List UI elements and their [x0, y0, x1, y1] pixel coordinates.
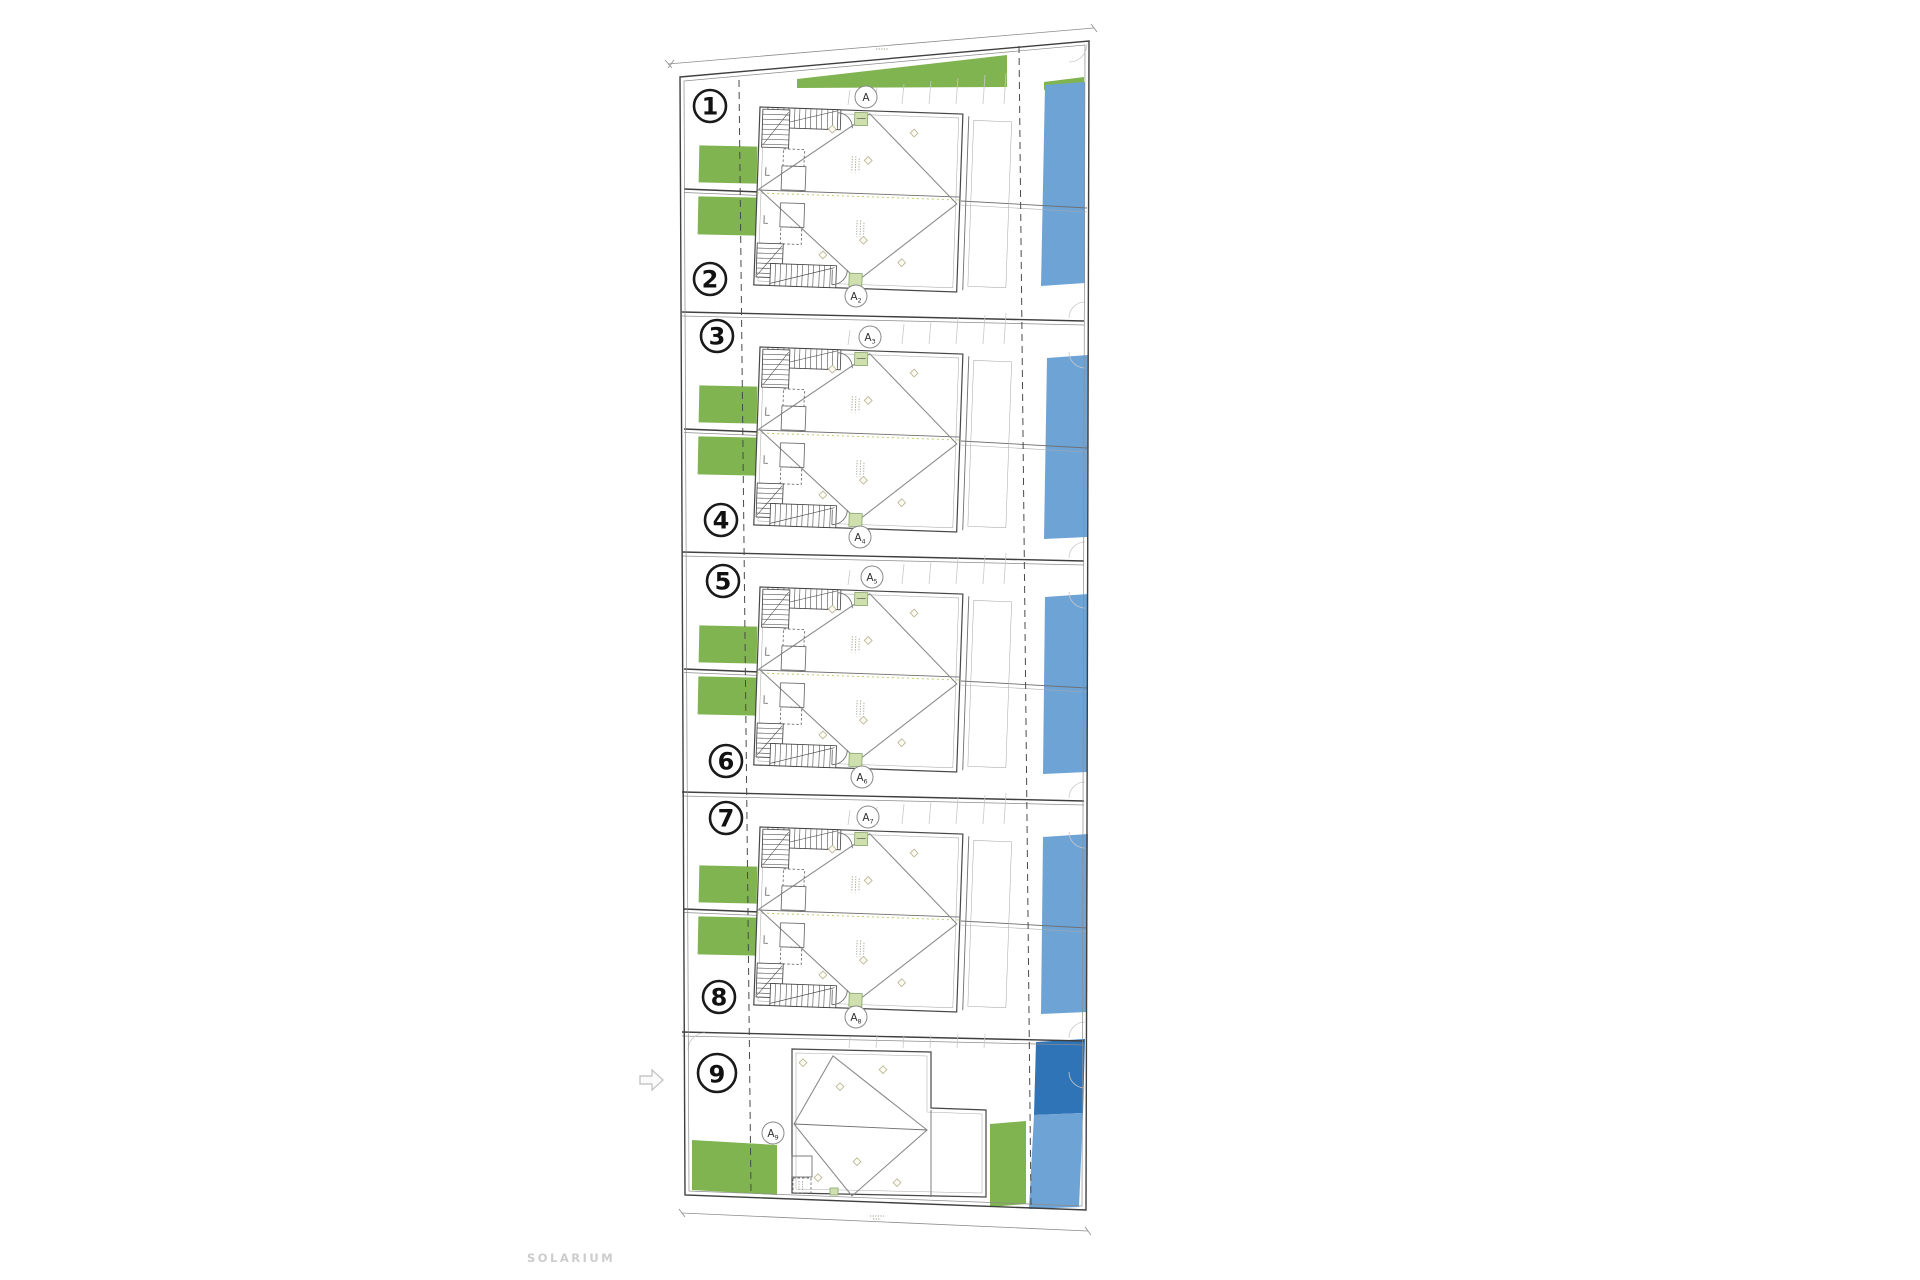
section-marker-a8: A8 — [845, 1006, 867, 1028]
svg-text:4: 4 — [713, 507, 730, 535]
section-marker-a1: A — [855, 86, 877, 108]
section-marker-a4: A4 — [849, 526, 871, 548]
section-marker-a6: A6 — [851, 766, 873, 788]
svg-text:1: 1 — [702, 93, 719, 121]
unit-number-9: 9 — [698, 1054, 736, 1092]
unit-number-6: 6 — [710, 745, 742, 777]
unit-number-5: 5 — [707, 565, 739, 597]
unit-number-1: 1 — [694, 90, 726, 122]
unit-number-8: 8 — [703, 981, 735, 1013]
svg-text:8: 8 — [711, 984, 728, 1012]
unit-number-4: 4 — [705, 504, 737, 536]
unit-number-2: 2 — [694, 263, 726, 295]
unit-number-3: 3 — [701, 320, 733, 352]
section-marker-a9: A9 — [762, 1122, 784, 1144]
svg-text:A: A — [862, 92, 870, 104]
section-marker-a3: A3 — [859, 326, 881, 348]
svg-text:6: 6 — [718, 748, 735, 776]
unit-number-7: 7 — [710, 802, 742, 834]
section-marker-a2: A2 — [845, 285, 867, 307]
site-plan-page: A A2 A3 A4 A5 A6 A7 A8 A9 1 2 3 4 5 6 7 … — [0, 0, 1920, 1280]
section-marker-a7: A7 — [857, 806, 879, 828]
svg-text:7: 7 — [718, 805, 735, 833]
svg-text:3: 3 — [709, 323, 726, 351]
svg-text:9: 9 — [709, 1061, 726, 1089]
svg-text:5: 5 — [715, 568, 732, 596]
solarium-label: SOLARIUM — [527, 1251, 615, 1265]
section-marker-a5: A5 — [861, 566, 883, 588]
site-plan-drawing: A A2 A3 A4 A5 A6 A7 A8 A9 1 2 3 4 5 6 7 … — [0, 0, 1920, 1280]
svg-text:2: 2 — [702, 266, 719, 294]
